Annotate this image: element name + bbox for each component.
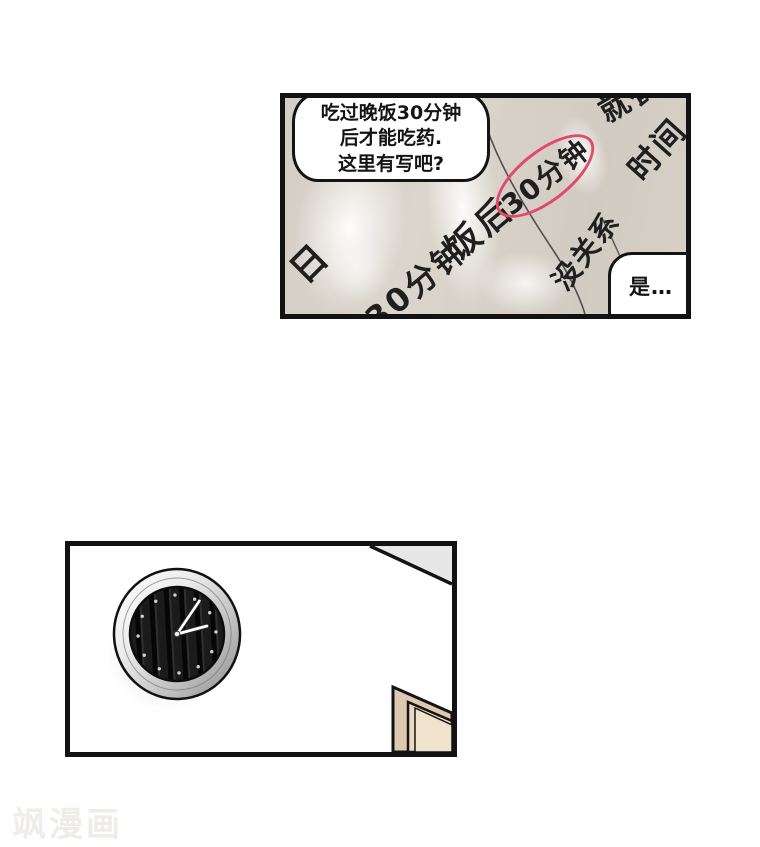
speech-line: 后才能吃药. xyxy=(340,126,442,152)
ceiling-corner xyxy=(368,546,452,586)
speech-line: 是… xyxy=(629,275,673,299)
speech-line: 这里有写吧? xyxy=(338,152,444,178)
door-frame xyxy=(385,681,452,752)
panel-paper-closeup: 日 30分钟 饭后 30分钟 没关系 时间 就餐 吃过晚饭30分钟 后才能吃药.… xyxy=(280,93,691,319)
speech-bubble-reply: 是… xyxy=(608,252,691,319)
site-watermark: 飒漫画 xyxy=(12,797,123,846)
panel-wall-clock xyxy=(65,541,457,757)
comic-page: { "page": { "watermark": "飒漫画", "backgro… xyxy=(0,0,760,847)
speech-line: 吃过晚饭30分钟 xyxy=(321,101,461,127)
wall-clock-icon xyxy=(111,566,243,702)
speech-bubble-question: 吃过晚饭30分钟 后才能吃药. 这里有写吧? xyxy=(292,93,490,182)
